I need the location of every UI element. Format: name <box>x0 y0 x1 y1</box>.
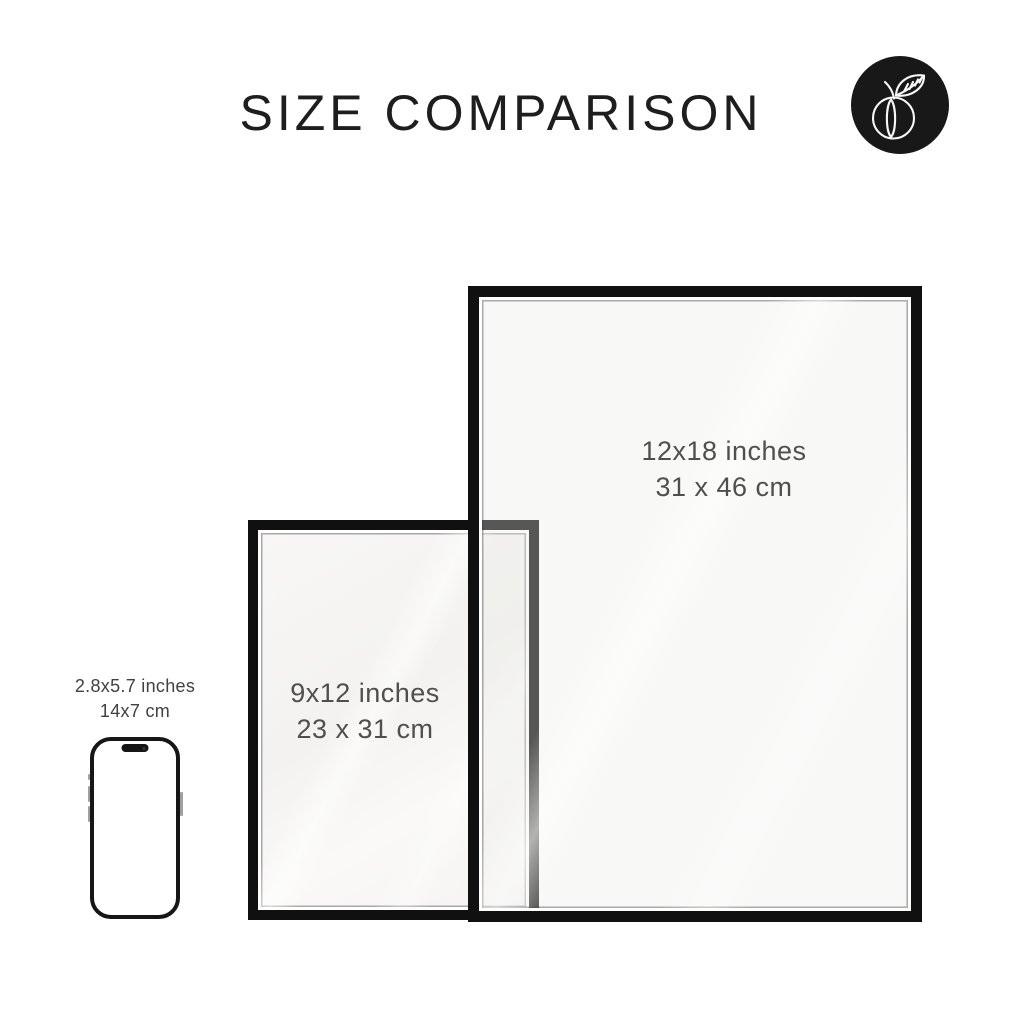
size-cm: 31 x 46 cm <box>537 469 911 505</box>
phone-camera-dot <box>143 747 146 750</box>
size-cm: 14x7 cm <box>40 699 230 724</box>
frame-9x12-size-label: 9x12 inches 23 x 31 cm <box>258 675 472 747</box>
phone-illustration <box>90 737 180 919</box>
phone-size-label: 2.8x5.7 inches 14x7 cm <box>40 674 230 724</box>
size-inches: 9x12 inches <box>258 675 472 711</box>
size-cm: 23 x 31 cm <box>258 711 472 747</box>
phone-dynamic-island <box>122 744 149 752</box>
size-inches: 12x18 inches <box>537 433 911 469</box>
peach-icon <box>851 56 949 154</box>
brand-logo <box>851 56 949 154</box>
frame-12x18-size-label: 12x18 inches 31 x 46 cm <box>537 433 911 505</box>
phone-power-button <box>180 792 183 816</box>
frame-12x18: 12x18 inches 31 x 46 cm <box>468 286 922 922</box>
phone-mute-switch <box>88 774 91 780</box>
size-inches: 2.8x5.7 inches <box>40 674 230 699</box>
size-comparison-graphic: SIZE COMPARISON <box>0 0 1024 1024</box>
phone-volume-up-button <box>88 786 91 802</box>
phone-volume-down-button <box>88 806 91 822</box>
